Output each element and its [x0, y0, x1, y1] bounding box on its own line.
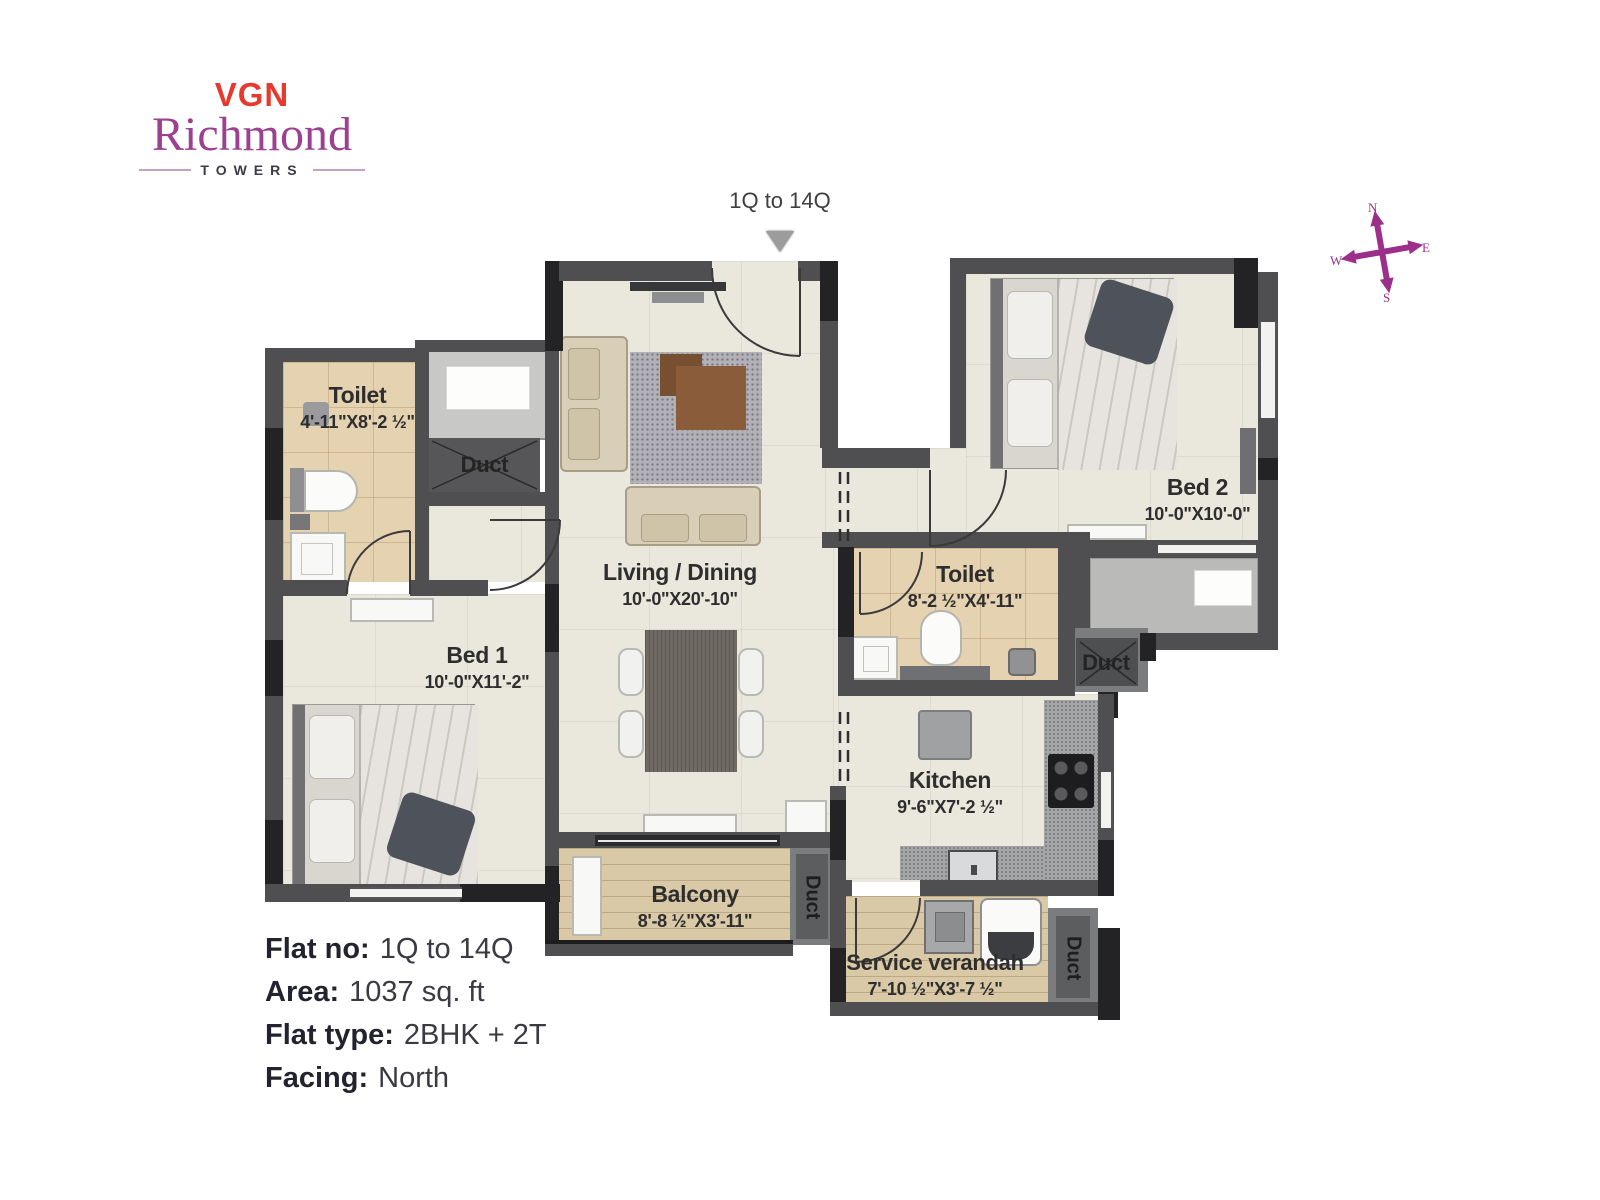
toilet1-door-arc	[347, 531, 410, 594]
flat-no-label: Flat no:	[265, 933, 370, 965]
room-name: Kitchen	[855, 768, 1045, 793]
room-dims: 10'-0"X11'-2"	[377, 672, 577, 693]
bed2-door-arc	[930, 470, 1006, 546]
flat-type-row: Flat type:2BHK + 2T	[265, 1014, 547, 1057]
toilet1-label: Toilet 4'-11"X8'-2 ½"	[295, 383, 420, 433]
facing-value: North	[378, 1062, 449, 1094]
duct4-label: Duct	[1048, 914, 1098, 1002]
duct3-label: Duct	[790, 852, 834, 942]
room-dims: 9'-6"X7'-2 ½"	[855, 797, 1045, 818]
room-name: Balcony	[600, 882, 790, 907]
compass-rose-icon	[1333, 203, 1430, 300]
floor-plan-page: VGN Richmond TOWERS 1Q to 14Q	[0, 0, 1600, 1200]
area-label: Area:	[265, 976, 339, 1008]
balcony-label: Balcony 8'-8 ½"X3'-11"	[600, 882, 790, 932]
flat-type-label: Flat type:	[265, 1019, 394, 1051]
compass-east-label: E	[1422, 240, 1430, 256]
compass-north-label: N	[1368, 200, 1377, 216]
room-name: Living / Dining	[575, 560, 785, 585]
room-dims: 10'-0"X10'-0"	[1100, 504, 1295, 525]
duct1-label: Duct	[429, 452, 540, 478]
room-name: Service verandah	[840, 950, 1030, 975]
flat-type-value: 2BHK + 2T	[404, 1019, 547, 1051]
room-name: Bed 1	[377, 643, 577, 668]
room-name: Bed 2	[1100, 475, 1295, 500]
open-passage-dashes	[840, 472, 848, 788]
duct2-label: Duct	[1064, 650, 1148, 676]
room-dims: 4'-11"X8'-2 ½"	[295, 412, 420, 433]
compass-south-label: S	[1383, 290, 1390, 306]
bed2-label: Bed 2 10'-0"X10'-0"	[1100, 475, 1295, 525]
compass-west-label: W	[1330, 253, 1342, 269]
bed1-door-arc	[490, 520, 560, 590]
flat-no-value: 1Q to 14Q	[380, 933, 514, 965]
door-swing-arcs	[347, 268, 1006, 962]
room-dims: 8'-2 ½"X4'-11"	[870, 591, 1060, 612]
area-row: Area:1037 sq. ft	[265, 971, 547, 1014]
area-value: 1037 sq. ft	[349, 976, 484, 1008]
room-dims: 7'-10 ½"X3'-7 ½"	[840, 979, 1030, 1000]
room-dims: 8'-8 ½"X3'-11"	[600, 911, 790, 932]
room-name: Toilet	[870, 562, 1060, 587]
service-verandah-label: Service verandah 7'-10 ½"X3'-7 ½"	[840, 950, 1030, 1000]
living-dining-label: Living / Dining 10'-0"X20'-10"	[575, 560, 785, 610]
bed1-label: Bed 1 10'-0"X11'-2"	[377, 643, 577, 693]
flat-no-row: Flat no:1Q to 14Q	[265, 928, 547, 971]
room-name: Toilet	[295, 383, 420, 408]
room-dims: 10'-0"X20'-10"	[575, 589, 785, 610]
flat-info-block: Flat no:1Q to 14Q Area:1037 sq. ft Flat …	[265, 928, 547, 1100]
facing-label: Facing:	[265, 1062, 368, 1094]
kitchen-label: Kitchen 9'-6"X7'-2 ½"	[855, 768, 1045, 818]
toilet2-label: Toilet 8'-2 ½"X4'-11"	[870, 562, 1060, 612]
plan-annotations-overlay	[0, 0, 1600, 1200]
facing-row: Facing:North	[265, 1057, 547, 1100]
entrance-door-arc	[712, 268, 800, 356]
